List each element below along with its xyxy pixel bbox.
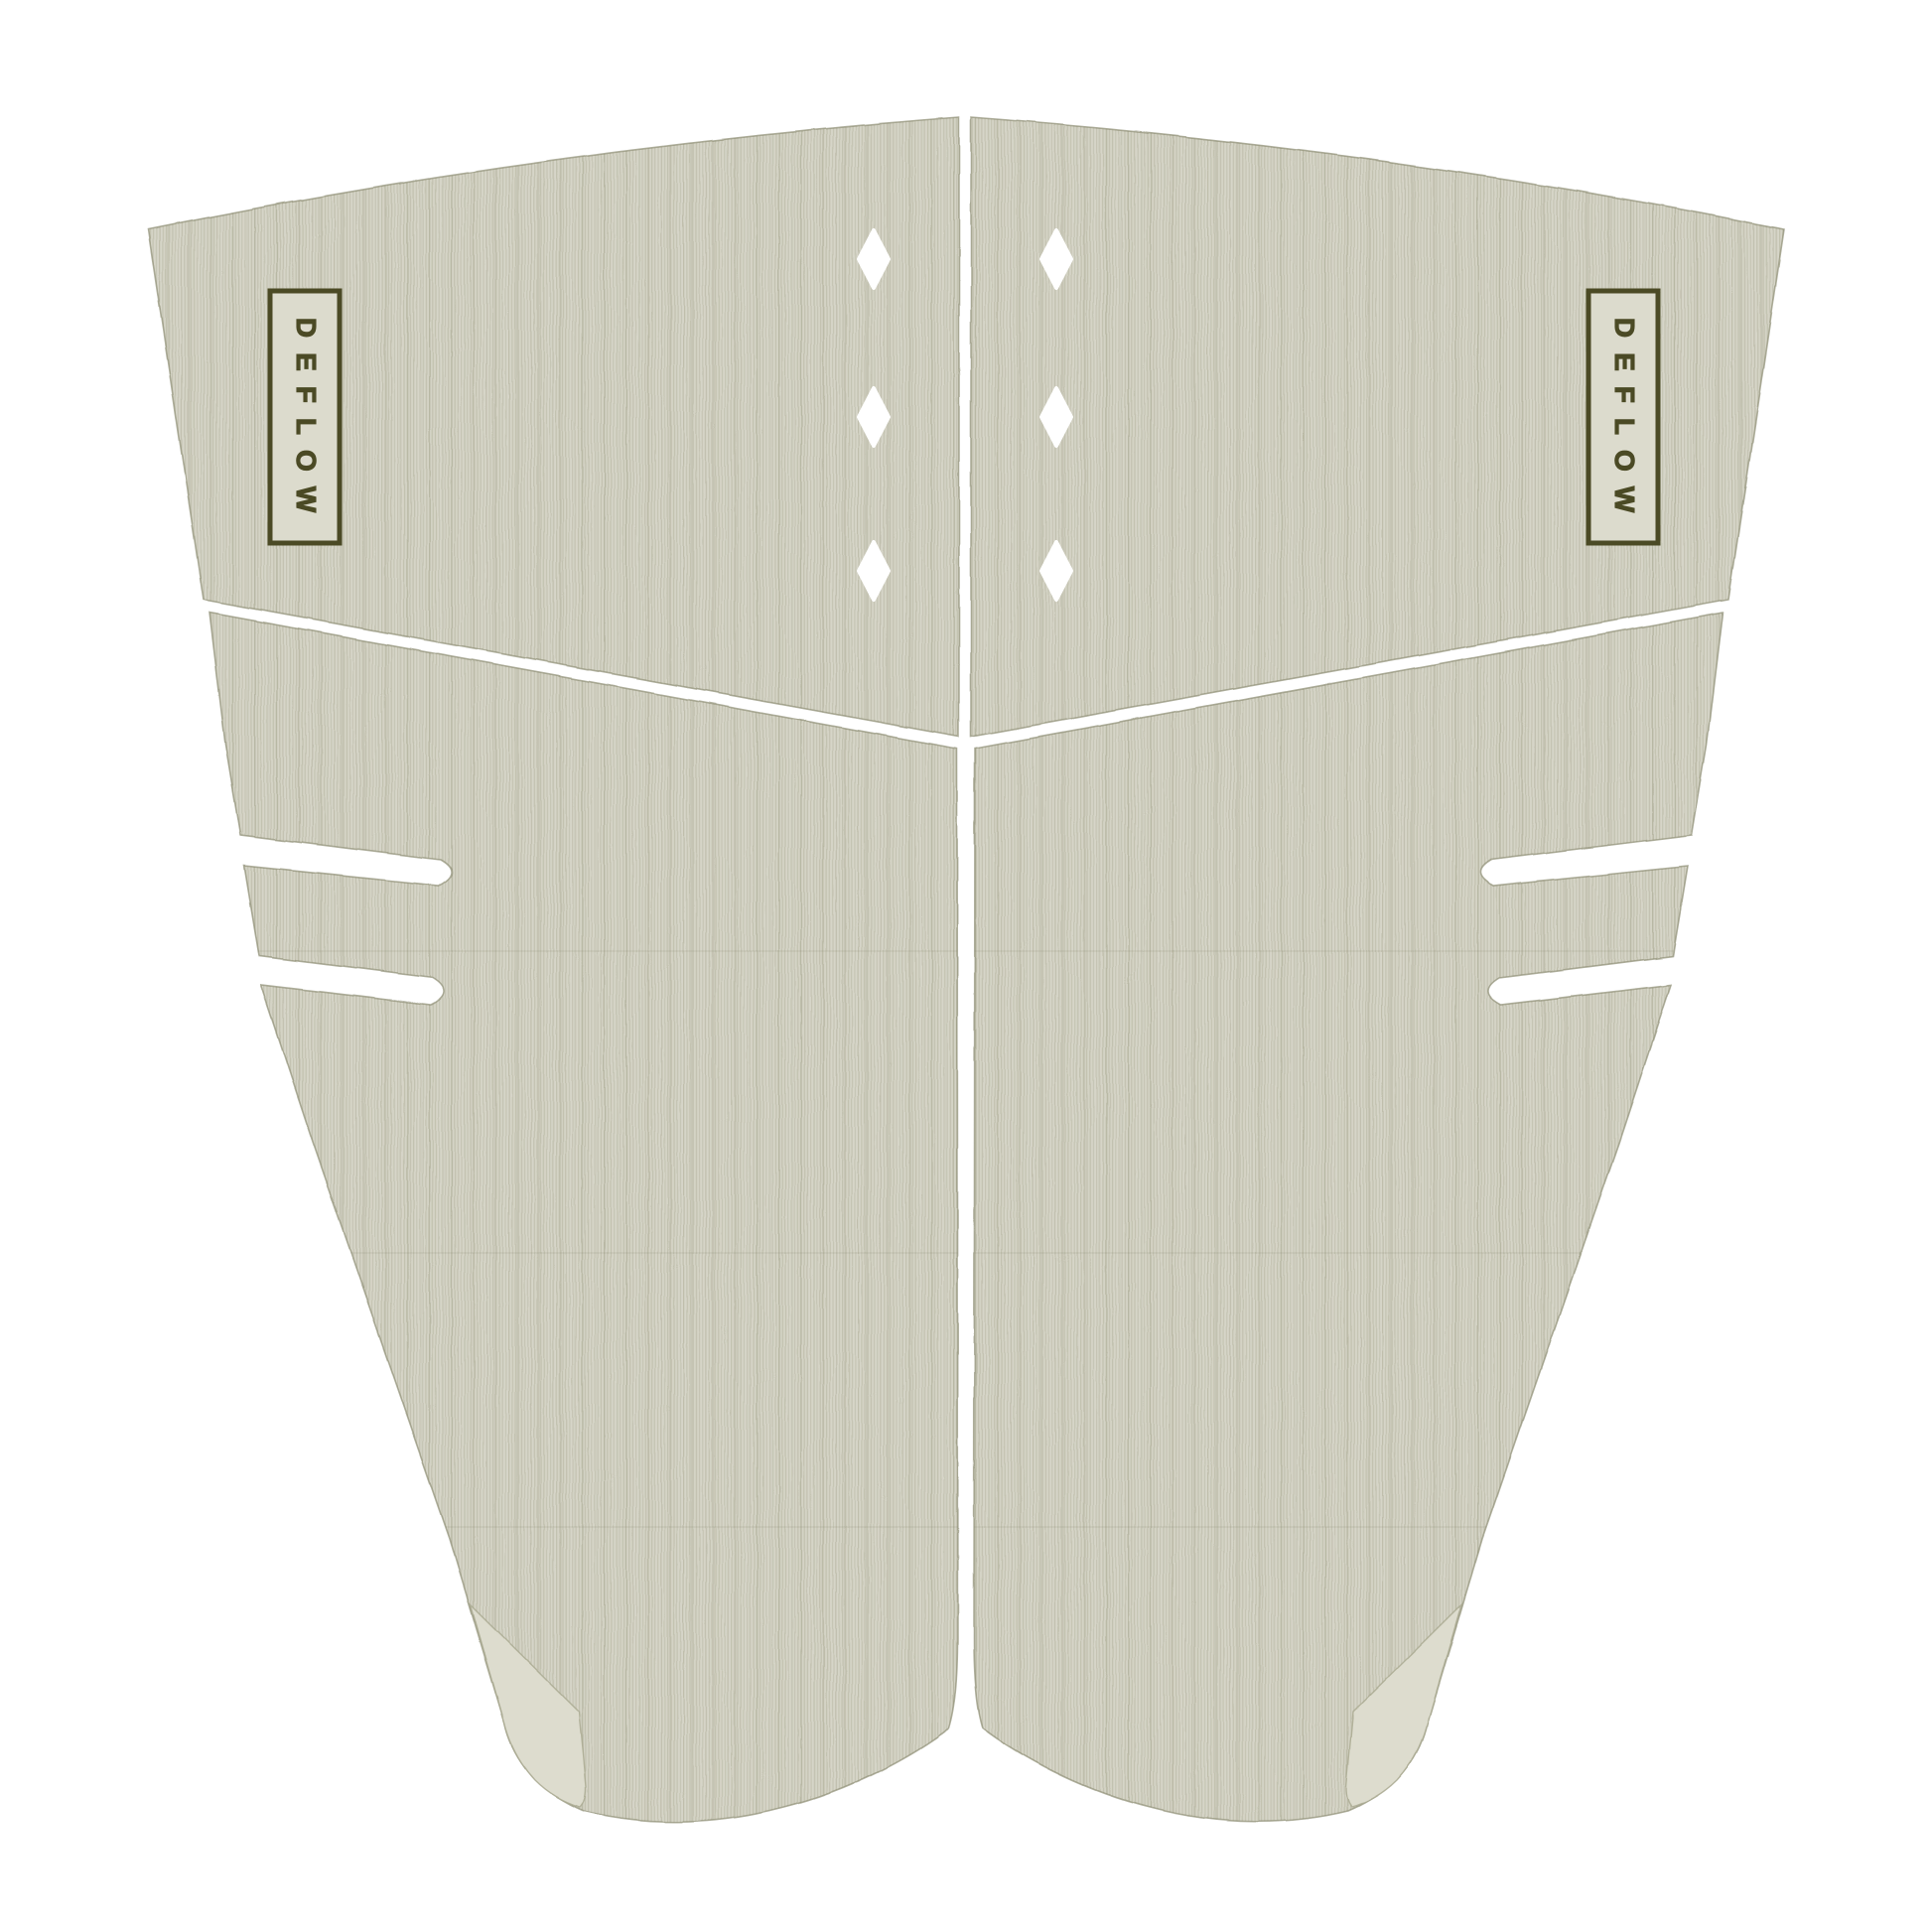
svg-text:DEFLOW: DEFLOW xyxy=(291,318,322,527)
svg-text:DEFLOW: DEFLOW xyxy=(1609,318,1640,527)
